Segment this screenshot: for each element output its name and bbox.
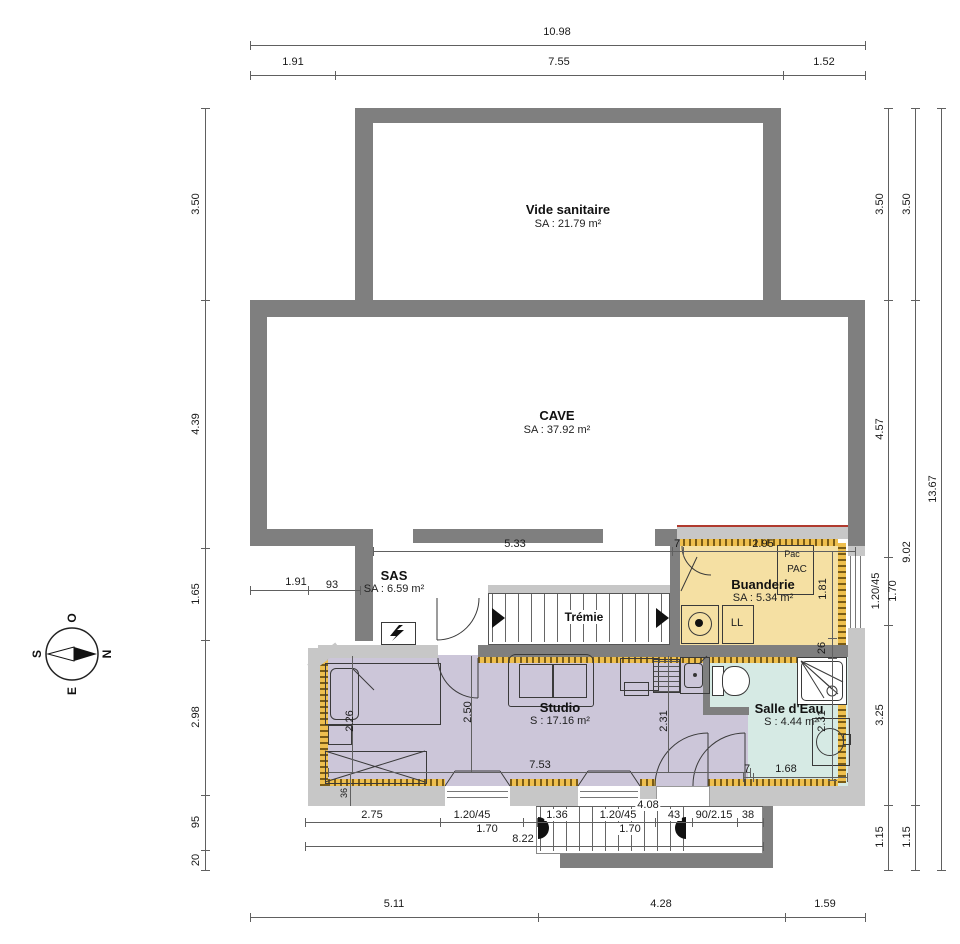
- tick: [828, 551, 837, 552]
- dim-line-top-segs: [250, 75, 865, 76]
- washer-label: LL: [731, 617, 743, 629]
- tick: [865, 41, 866, 50]
- dim-cave-b: 93: [326, 579, 338, 591]
- dim-line-right-inner: [888, 108, 889, 870]
- tick: [865, 71, 866, 80]
- tremie-arrow-left: [492, 608, 505, 628]
- dim-sill36: 36: [339, 788, 349, 798]
- room-label-studio: Studio: [540, 700, 580, 715]
- tick: [201, 548, 210, 549]
- dim-chain-b: 1.20/45: [454, 809, 491, 821]
- plan-vector-overlay: [0, 0, 960, 944]
- dim-top-b: 7.55: [548, 56, 569, 68]
- tick: [937, 108, 946, 109]
- tick: [884, 108, 893, 109]
- tick: [655, 818, 656, 827]
- bed-fold-line: [352, 668, 374, 690]
- dim-cave-a: 1.91: [285, 576, 306, 588]
- compass-needle-west: [48, 647, 74, 661]
- tick: [201, 640, 210, 641]
- dim-studio-a: 2.26: [344, 710, 356, 731]
- tick: [250, 41, 251, 50]
- dim-line-chain-total: [305, 846, 763, 847]
- tick: [753, 773, 754, 782]
- dim-ext-stair: 4.08: [635, 799, 660, 811]
- tick: [201, 850, 210, 851]
- dim-right2-c: 1.15: [901, 826, 913, 847]
- dim-right1-d: 3.25: [874, 704, 886, 725]
- tick: [250, 586, 251, 595]
- dim-chain-c: 1.36: [544, 809, 569, 821]
- dim-buand-width: 2.95: [752, 538, 773, 550]
- dim-left-c: 1.65: [190, 583, 202, 604]
- dim-left-d: 2.98: [190, 706, 202, 727]
- room-area-buanderie: SA : 5.34 m²: [733, 592, 794, 604]
- tick: [672, 547, 673, 556]
- dim-line-right-mid: [915, 108, 916, 870]
- dim-right1-a: 3.50: [874, 193, 886, 214]
- tick: [750, 768, 751, 777]
- dim-bottom-b: 4.28: [650, 898, 671, 910]
- tick: [328, 768, 329, 777]
- tick: [911, 300, 920, 301]
- room-label-cave: CAVE: [539, 408, 574, 423]
- room-label-buanderie: Buanderie: [731, 577, 795, 592]
- tick: [884, 870, 893, 871]
- dim-left-e: 95: [190, 816, 202, 828]
- compass-letter-right: N: [100, 650, 114, 659]
- dim-left-b: 4.39: [190, 413, 202, 434]
- tick: [763, 818, 764, 827]
- pac-small-label: Pac: [784, 549, 800, 559]
- tick: [911, 805, 920, 806]
- tick: [683, 547, 684, 556]
- dim-right3: 13.67: [927, 475, 939, 503]
- tick: [308, 586, 309, 595]
- tick: [828, 638, 837, 639]
- dim-wall26: 26: [816, 642, 828, 654]
- window-sill-1: [445, 771, 510, 786]
- tick: [523, 818, 524, 827]
- tick: [201, 795, 210, 796]
- tick: [373, 547, 374, 556]
- dim-chain-d2: 1.70: [617, 823, 642, 835]
- tick: [592, 818, 593, 827]
- dim-line-bottom: [250, 917, 865, 918]
- tick: [250, 71, 251, 80]
- tremie-label: Trémie: [563, 610, 606, 624]
- dim-line-sas-buand: [373, 551, 855, 552]
- dim-right1-c2: 1.70: [887, 580, 899, 601]
- dim-sde-w: 1.68: [775, 763, 796, 775]
- tick: [305, 842, 306, 851]
- door-leaf-buanderie: [681, 557, 697, 591]
- tick: [201, 870, 210, 871]
- electrical-bolt-icon: [390, 625, 404, 641]
- dim-right2-b: 9.02: [901, 541, 913, 562]
- window-sill-2: [578, 771, 640, 786]
- dim-chain-a: 2.75: [361, 809, 382, 821]
- dim-chain-g: 38: [740, 809, 756, 821]
- tick: [737, 818, 738, 827]
- tick: [884, 300, 893, 301]
- tick: [847, 773, 848, 782]
- dim-line-buand-depth: [832, 551, 833, 780]
- dim-line-cave-193: [250, 590, 360, 591]
- door-arc-sas: [437, 598, 479, 640]
- landing-chamfer-wall: [310, 646, 338, 668]
- tick: [250, 913, 251, 922]
- room-area-studio: S : 17.16 m²: [530, 715, 590, 727]
- compass-letter-top: O: [65, 613, 79, 622]
- dim-buand-depth: 1.81: [817, 578, 829, 599]
- door-arc-studio-top: [438, 658, 478, 698]
- tick: [440, 818, 441, 827]
- tick: [911, 870, 920, 871]
- dim-chain-d: 1.20/45: [598, 809, 639, 821]
- dim-door7: 7: [674, 538, 680, 550]
- tick: [335, 71, 336, 80]
- tick: [201, 300, 210, 301]
- dim-left-f: 20: [190, 854, 202, 866]
- compass-letter-bottom: E: [65, 687, 79, 695]
- dim-chain-f: 90/2.15: [694, 809, 735, 821]
- sink-faucet: [699, 656, 707, 664]
- tick: [855, 547, 856, 556]
- dim-line-studio-w: [328, 772, 750, 773]
- tick: [828, 780, 837, 781]
- dim-chain-b2: 1.70: [476, 823, 497, 835]
- tick: [763, 842, 764, 851]
- dim-line-right-outer: [941, 108, 942, 870]
- tick: [785, 913, 786, 922]
- dim-studio-c: 2.31: [658, 710, 670, 731]
- compass-letter-left: S: [30, 650, 44, 658]
- dim-right1-b: 4.57: [874, 418, 886, 439]
- room-label-salle-deau: Salle d'Eau: [755, 701, 824, 716]
- tick: [305, 818, 306, 827]
- dim-sde-door7: 7: [744, 763, 750, 775]
- dim-chain-e: 43: [666, 809, 682, 821]
- dim-right1-e: 1.15: [874, 826, 886, 847]
- room-label-vide-sanitaire: Vide sanitaire: [526, 202, 610, 217]
- room-area-salle-deau: S : 4.44 m²: [764, 716, 818, 728]
- tick: [884, 805, 893, 806]
- tick: [865, 913, 866, 922]
- tick: [201, 108, 210, 109]
- dim-top-a: 1.91: [282, 56, 303, 68]
- dim-chain-total: 8.22: [510, 833, 535, 845]
- room-area-sas: SA : 6.59 m²: [364, 583, 425, 595]
- tick: [884, 625, 893, 626]
- dim-line-top-total: [250, 45, 865, 46]
- room-area-cave: SA : 37.92 m²: [524, 424, 591, 436]
- dim-bottom-a: 5.11: [384, 898, 405, 910]
- tick: [783, 71, 784, 80]
- sink-drain-dot: [694, 674, 697, 677]
- dim-top-c: 1.52: [813, 56, 834, 68]
- tick: [937, 870, 946, 871]
- dim-line-chain: [305, 822, 763, 823]
- dim-studio-w: 7.53: [529, 759, 550, 771]
- tick: [911, 108, 920, 109]
- pac-unit-label: PAC: [787, 564, 807, 575]
- room-label-sas: SAS: [381, 568, 408, 583]
- tick: [884, 557, 893, 558]
- tick: [538, 913, 539, 922]
- dim-bottom-c: 1.59: [814, 898, 835, 910]
- dim-right1-c: 1.20/45: [870, 573, 882, 610]
- door-arc-salle-deau: [693, 733, 745, 786]
- tick: [828, 658, 837, 659]
- dim-studio-b: 2.50: [462, 701, 474, 722]
- dim-line-left: [205, 108, 206, 870]
- tick: [537, 818, 538, 827]
- dim-left-a: 3.50: [190, 193, 202, 214]
- tick: [360, 586, 361, 595]
- dim-line-sde-w: [743, 777, 847, 778]
- tremie-arrow-right: [656, 608, 669, 628]
- dim-sas-width: 5.33: [504, 538, 525, 550]
- dim-line-sill: [350, 775, 351, 806]
- wardrobe-cross: [325, 751, 425, 782]
- compass-needle-north: [74, 647, 97, 661]
- dim-top-total: 10.98: [543, 26, 571, 38]
- floor-plan-basement: O N E S: [0, 0, 960, 944]
- dim-right2-a: 3.50: [901, 193, 913, 214]
- room-area-vide-sanitaire: SA : 21.79 m²: [535, 218, 602, 230]
